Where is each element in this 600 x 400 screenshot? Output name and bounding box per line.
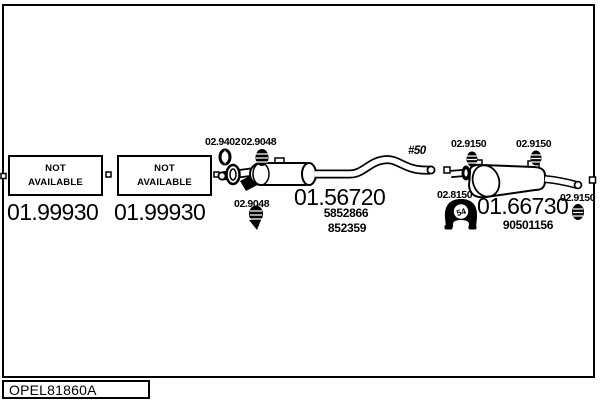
oe-ref: 90501156 — [497, 218, 559, 232]
part-label-clamp[interactable]: 02.9048 — [234, 198, 269, 210]
rubber-hanger-icon — [467, 152, 478, 167]
part-label-hanger-mid[interactable]: 02.9150 — [516, 138, 551, 150]
exhaust-diagram-page: 54 NOT AVAILABLE NOT AVAILABLE 01.99930 … — [0, 0, 600, 400]
ring-clamp-icon — [220, 150, 230, 164]
connecting-pipe-drawing — [315, 160, 436, 175]
gasket-icon — [256, 149, 269, 166]
not-available-label: NOT AVAILABLE — [132, 162, 198, 190]
not-available-box: NOT AVAILABLE — [117, 155, 212, 196]
part-label-hanger-tail[interactable]: 02.9150 — [560, 192, 595, 204]
catalog-code: OPEL81860A — [9, 382, 97, 398]
part-number-rear-muffler[interactable]: 01.66730 — [477, 193, 568, 220]
part-number-front-pipe-1[interactable]: 01.99930 — [7, 199, 98, 226]
oe-ref: 5852866 — [318, 206, 374, 220]
pipe-diameter-note: #50 — [408, 145, 426, 157]
catalog-code-box: OPEL81860A — [2, 380, 150, 399]
mount-bracket-icon: 54 — [445, 199, 478, 230]
part-label-hanger-front[interactable]: 02.9150 — [451, 138, 486, 150]
not-available-box: NOT AVAILABLE — [8, 155, 103, 196]
not-available-label: NOT AVAILABLE — [23, 162, 89, 190]
part-number-front-pipe-2[interactable]: 01.99930 — [114, 199, 205, 226]
rubber-hanger-icon — [531, 151, 542, 166]
rubber-hanger-icon — [572, 204, 584, 220]
oe-ref: 852359 — [322, 221, 372, 235]
part-label-gasket[interactable]: 02.9048 — [241, 136, 276, 148]
part-label-bracket[interactable]: 02.8150 — [437, 189, 472, 201]
part-label-ring-clamp[interactable]: 02.9402 — [205, 136, 240, 148]
